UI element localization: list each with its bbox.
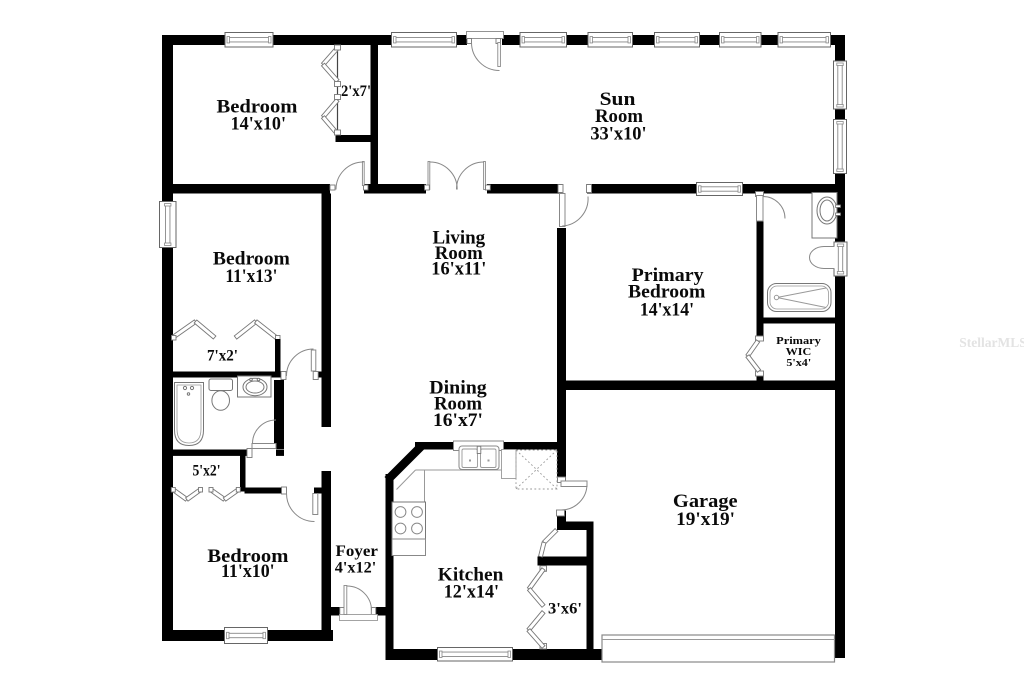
svg-text:14'x14': 14'x14' <box>640 299 694 320</box>
svg-text:3'x6': 3'x6' <box>548 601 582 618</box>
svg-text:14'x10': 14'x10' <box>231 114 286 135</box>
svg-text:5'x4': 5'x4' <box>786 358 811 369</box>
svg-text:7'x2': 7'x2' <box>207 348 238 365</box>
svg-text:16'x11': 16'x11' <box>431 258 486 279</box>
svg-text:StellarMLS: StellarMLS <box>959 335 1024 350</box>
svg-text:11'x10': 11'x10' <box>221 561 275 582</box>
svg-text:16'x7': 16'x7' <box>433 410 483 431</box>
svg-text:Primary: Primary <box>776 336 822 347</box>
svg-text:2'x7': 2'x7' <box>341 83 371 100</box>
svg-text:12'x14': 12'x14' <box>444 582 499 603</box>
svg-text:Foyer: Foyer <box>336 543 378 560</box>
svg-text:4'x12': 4'x12' <box>335 559 377 576</box>
svg-text:11'x13': 11'x13' <box>225 266 277 287</box>
svg-text:5'x2': 5'x2' <box>193 463 221 480</box>
svg-text:WIC: WIC <box>786 347 812 358</box>
svg-text:33'x10': 33'x10' <box>590 123 646 144</box>
svg-text:19'x19': 19'x19' <box>676 509 735 530</box>
